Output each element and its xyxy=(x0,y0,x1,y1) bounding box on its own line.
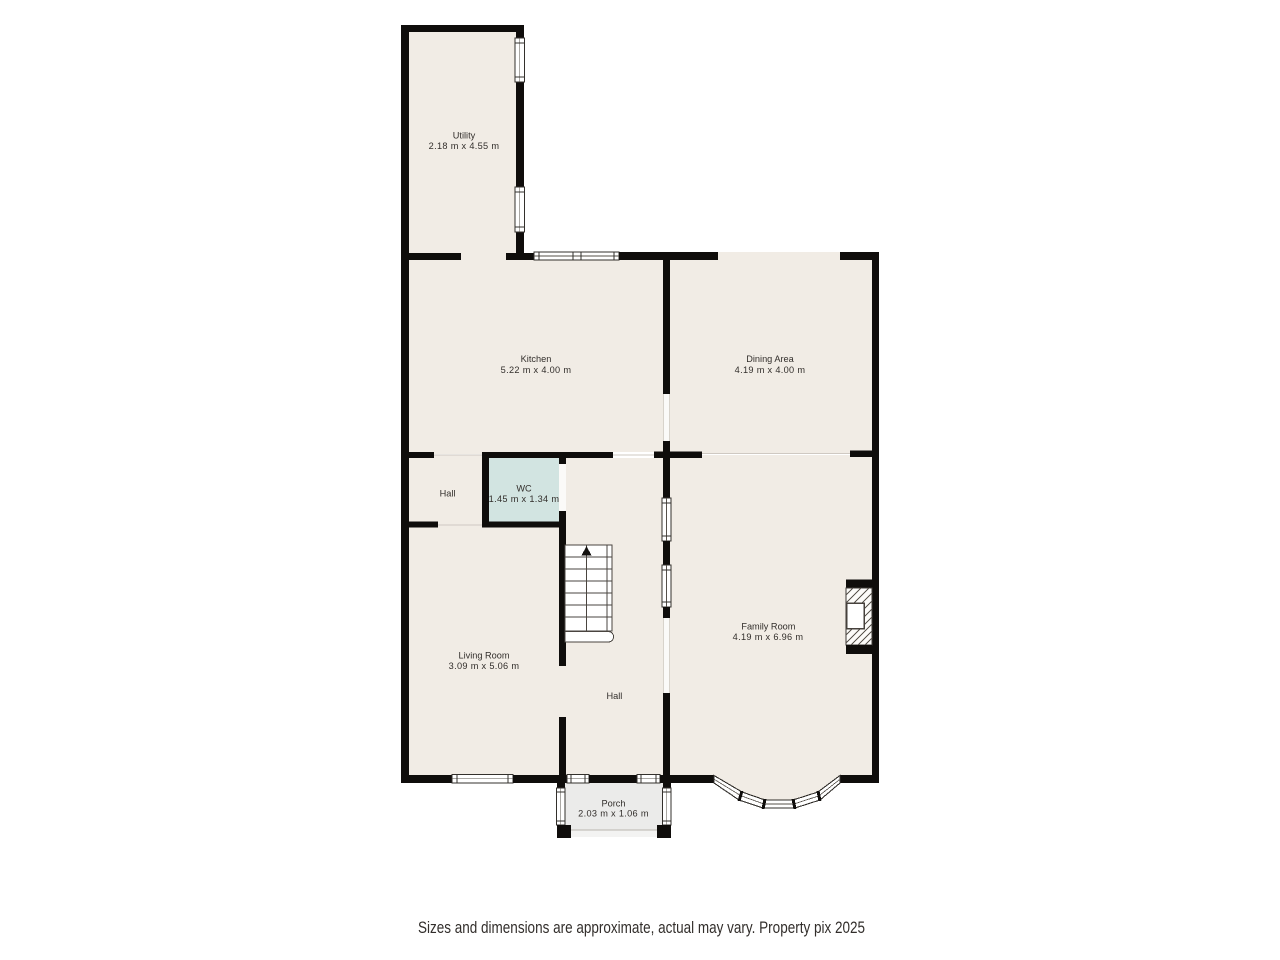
svg-text:4.19 m x 6.96 m: 4.19 m x 6.96 m xyxy=(733,632,804,642)
svg-text:Hall: Hall xyxy=(606,691,622,701)
svg-text:Living Room: Living Room xyxy=(458,651,509,661)
svg-text:5.22 m x 4.00 m: 5.22 m x 4.00 m xyxy=(501,365,572,375)
svg-text:WC: WC xyxy=(516,484,532,494)
svg-text:Dining Area: Dining Area xyxy=(746,354,794,364)
svg-text:Utility: Utility xyxy=(453,130,476,140)
svg-text:1.45 m x 1.34 m: 1.45 m x 1.34 m xyxy=(489,494,560,504)
svg-text:Kitchen: Kitchen xyxy=(521,354,552,364)
svg-text:2.03 m x 1.06 m: 2.03 m x 1.06 m xyxy=(578,809,649,819)
svg-text:2.18 m x 4.55 m: 2.18 m x 4.55 m xyxy=(429,141,500,151)
svg-text:3.09 m x 5.06 m: 3.09 m x 5.06 m xyxy=(449,661,520,671)
svg-text:Hall: Hall xyxy=(440,488,456,498)
svg-text:4.19 m x 4.00 m: 4.19 m x 4.00 m xyxy=(735,365,806,375)
svg-text:Sizes and dimensions are appro: Sizes and dimensions are approximate, ac… xyxy=(418,919,865,937)
svg-text:Porch: Porch xyxy=(601,798,625,808)
svg-text:Family Room: Family Room xyxy=(741,622,795,632)
